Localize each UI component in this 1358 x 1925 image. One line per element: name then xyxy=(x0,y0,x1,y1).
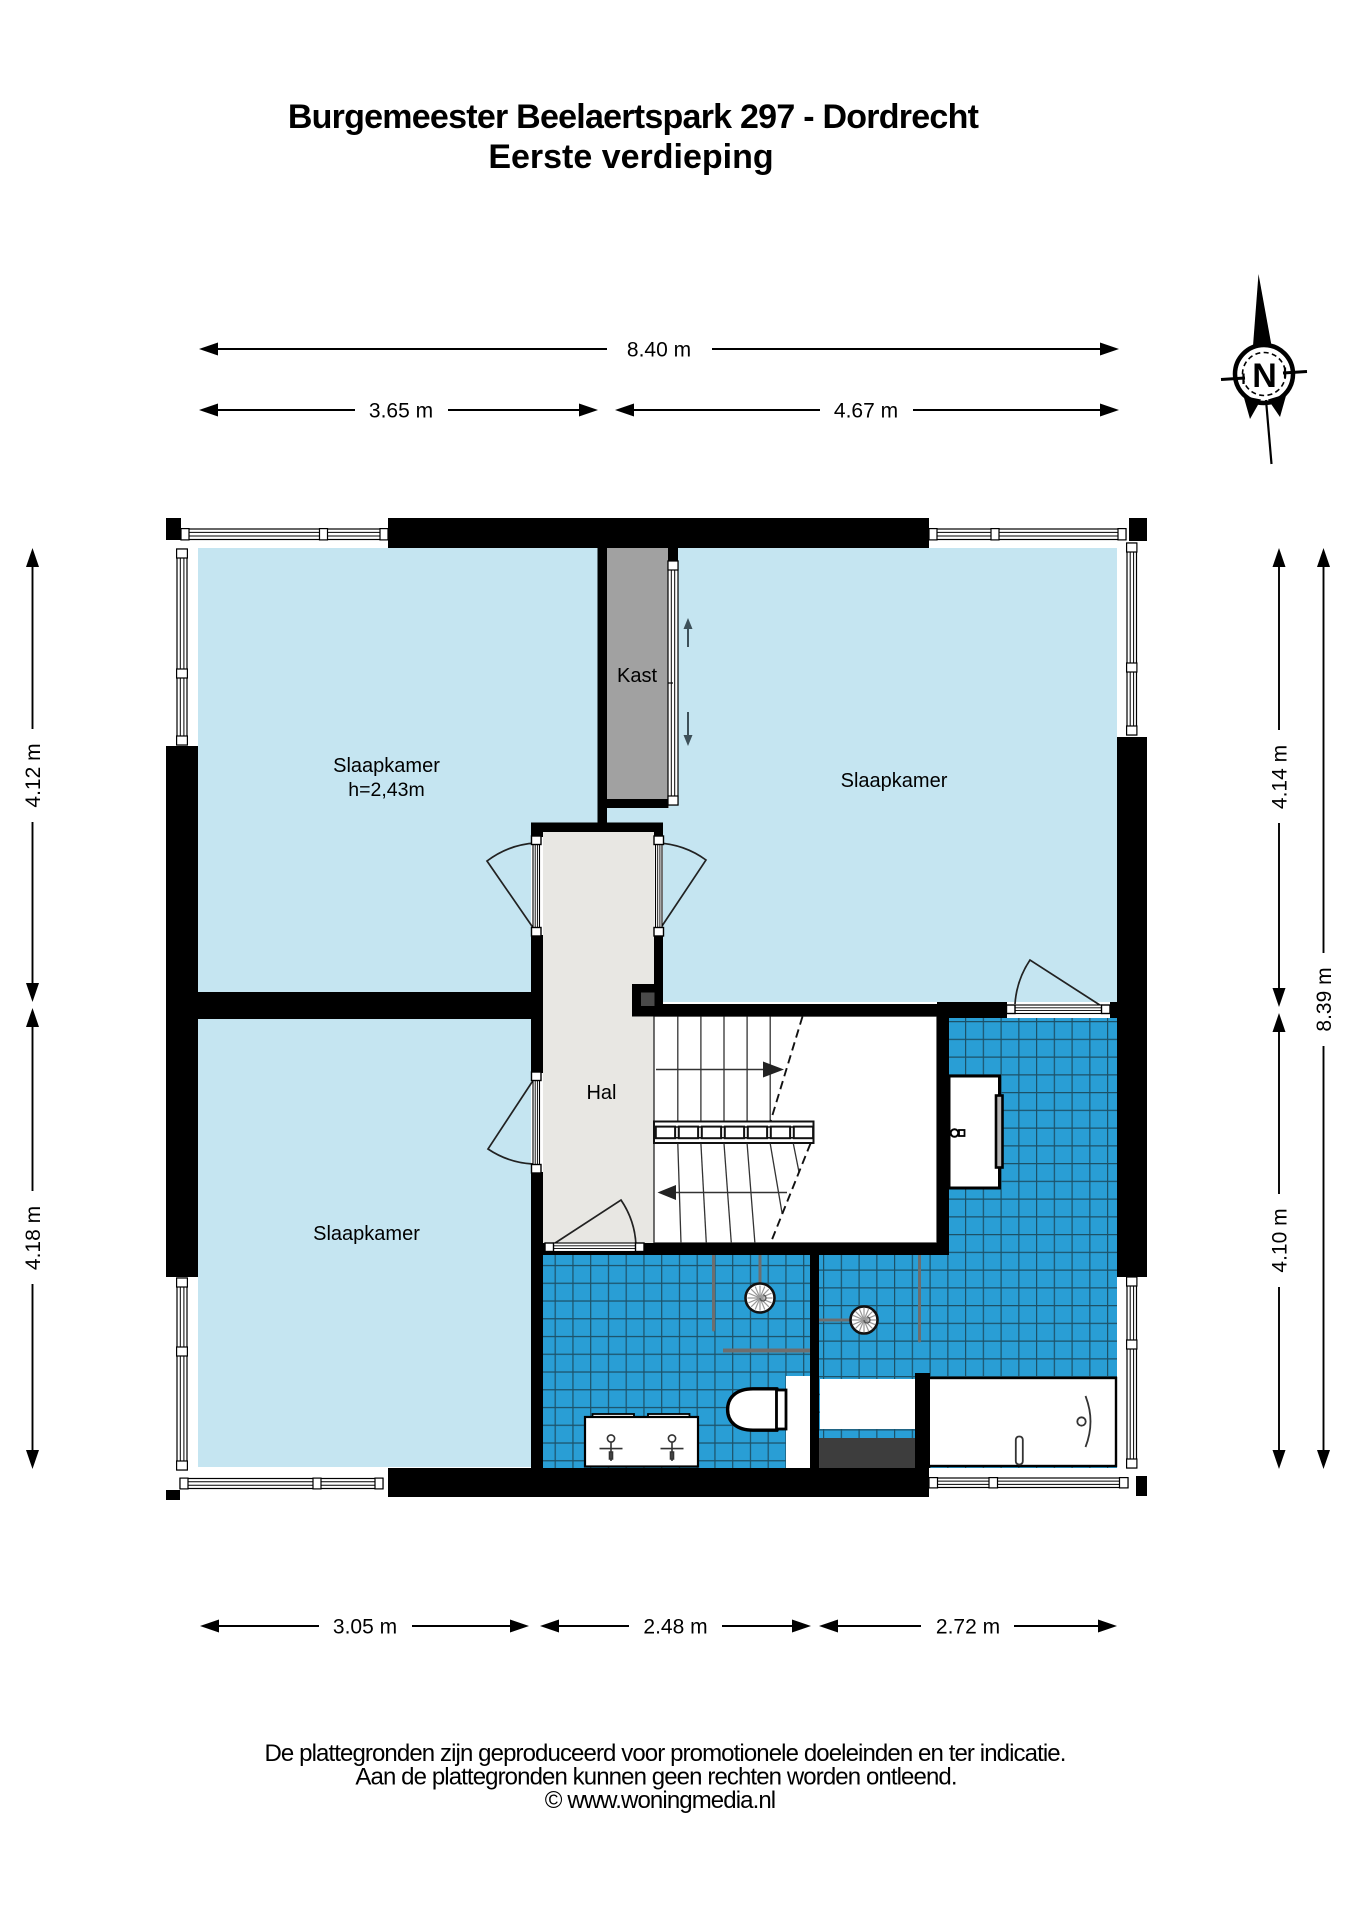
svg-text:h=2,43m: h=2,43m xyxy=(348,779,424,801)
svg-text:Slaapkamer: Slaapkamer xyxy=(313,1223,420,1245)
svg-text:3.65 m: 3.65 m xyxy=(369,400,433,423)
svg-text:4.14 m: 4.14 m xyxy=(1269,745,1292,809)
svg-text:3.05 m: 3.05 m xyxy=(333,1616,397,1639)
svg-text:N: N xyxy=(1252,357,1277,395)
svg-text:© www.woningmedia.nl: © www.woningmedia.nl xyxy=(545,1787,775,1814)
svg-text:4.67 m: 4.67 m xyxy=(834,400,898,423)
svg-text:Hal: Hal xyxy=(586,1082,616,1104)
svg-text:4.10 m: 4.10 m xyxy=(1269,1208,1292,1272)
svg-text:4.18 m: 4.18 m xyxy=(22,1206,45,1270)
svg-text:Kast: Kast xyxy=(617,665,657,687)
svg-text:8.40 m: 8.40 m xyxy=(627,339,691,362)
svg-text:2.72 m: 2.72 m xyxy=(936,1616,1000,1639)
svg-text:Slaapkamer: Slaapkamer xyxy=(841,770,948,792)
svg-text:Slaapkamer: Slaapkamer xyxy=(333,755,440,777)
svg-text:8.39 m: 8.39 m xyxy=(1313,967,1336,1031)
svg-text:Eerste verdieping: Eerste verdieping xyxy=(488,138,773,176)
svg-text:Burgemeester Beelaertspark 297: Burgemeester Beelaertspark 297 - Dordrec… xyxy=(288,98,979,136)
svg-text:2.48 m: 2.48 m xyxy=(643,1616,707,1639)
svg-text:4.12 m: 4.12 m xyxy=(22,743,45,807)
